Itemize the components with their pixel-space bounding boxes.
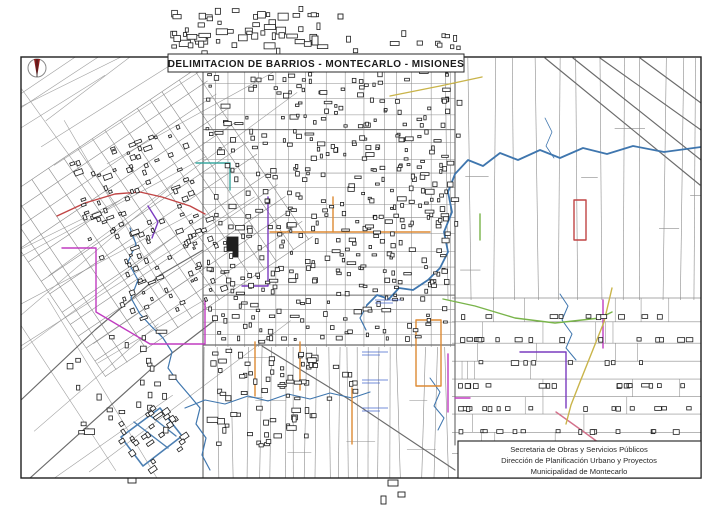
city-map-canvas: DELIMITACION DE BARRIOS - MONTECARLO - M… bbox=[0, 0, 720, 515]
map-page: DELIMITACION DE BARRIOS - MONTECARLO - M… bbox=[0, 0, 720, 515]
map-title-band: DELIMITACION DE BARRIOS - MONTECARLO - M… bbox=[168, 54, 465, 72]
title-block: Secretaria de Obras y Servicios Públicos… bbox=[458, 441, 701, 478]
title-block-line-1: Secretaria de Obras y Servicios Públicos bbox=[510, 445, 648, 454]
title-block-line-3: Municipalidad de Montecarlo bbox=[531, 467, 628, 476]
map-title: DELIMITACION DE BARRIOS - MONTECARLO - M… bbox=[168, 59, 465, 70]
compass-needle-icon bbox=[28, 59, 46, 77]
title-block-line-2: Dirección de Planificación Urbano y Proy… bbox=[501, 456, 657, 465]
map-layers bbox=[0, 2, 709, 515]
buildings bbox=[62, 6, 693, 504]
